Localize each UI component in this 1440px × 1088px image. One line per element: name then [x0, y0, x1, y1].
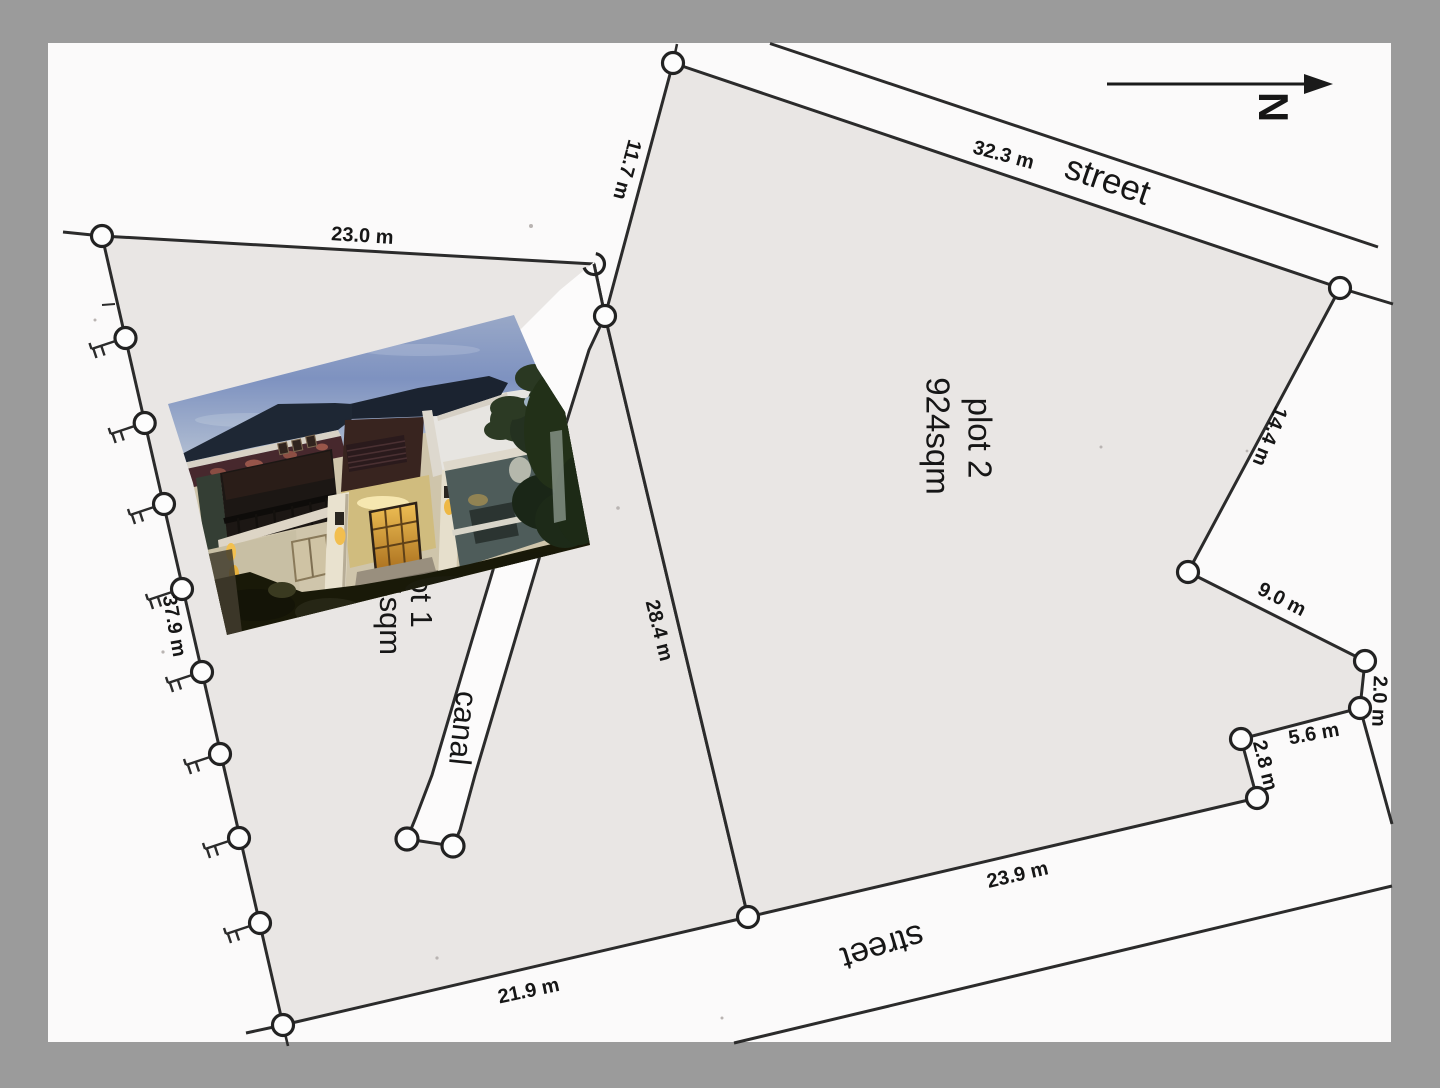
- svg-text:2.0 m: 2.0 m: [1367, 675, 1391, 727]
- svg-text:N: N: [1250, 92, 1297, 122]
- svg-text:23.0 m: 23.0 m: [331, 223, 394, 249]
- svg-text:plot 2: plot 2: [961, 398, 998, 479]
- svg-text:924sqm: 924sqm: [919, 377, 956, 494]
